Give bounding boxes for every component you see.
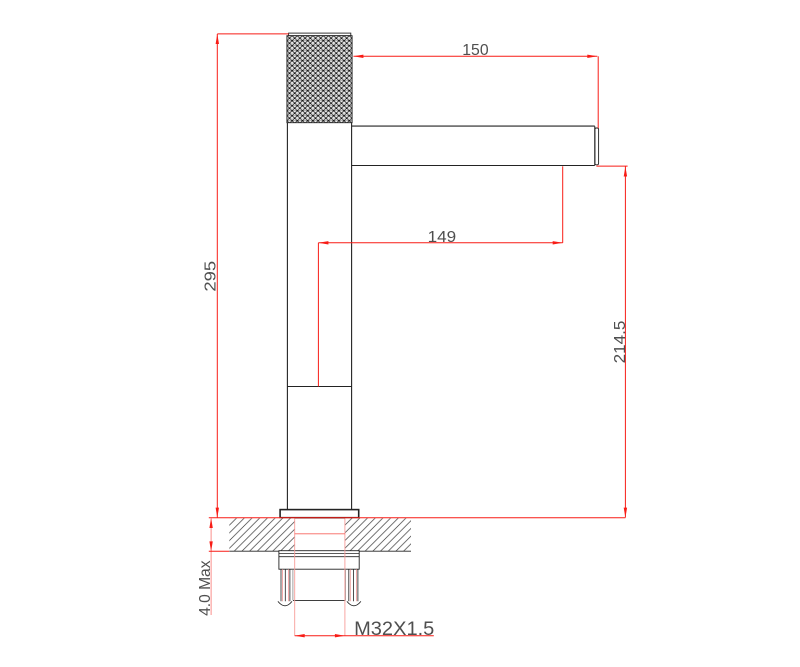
svg-text:M32X1.5: M32X1.5 xyxy=(354,619,434,640)
svg-text:149: 149 xyxy=(428,229,457,246)
svg-text:295: 295 xyxy=(203,261,220,292)
svg-text:214.5: 214.5 xyxy=(612,320,629,363)
svg-text:150: 150 xyxy=(462,42,488,59)
svg-text:4.0 Max: 4.0 Max xyxy=(197,561,214,616)
